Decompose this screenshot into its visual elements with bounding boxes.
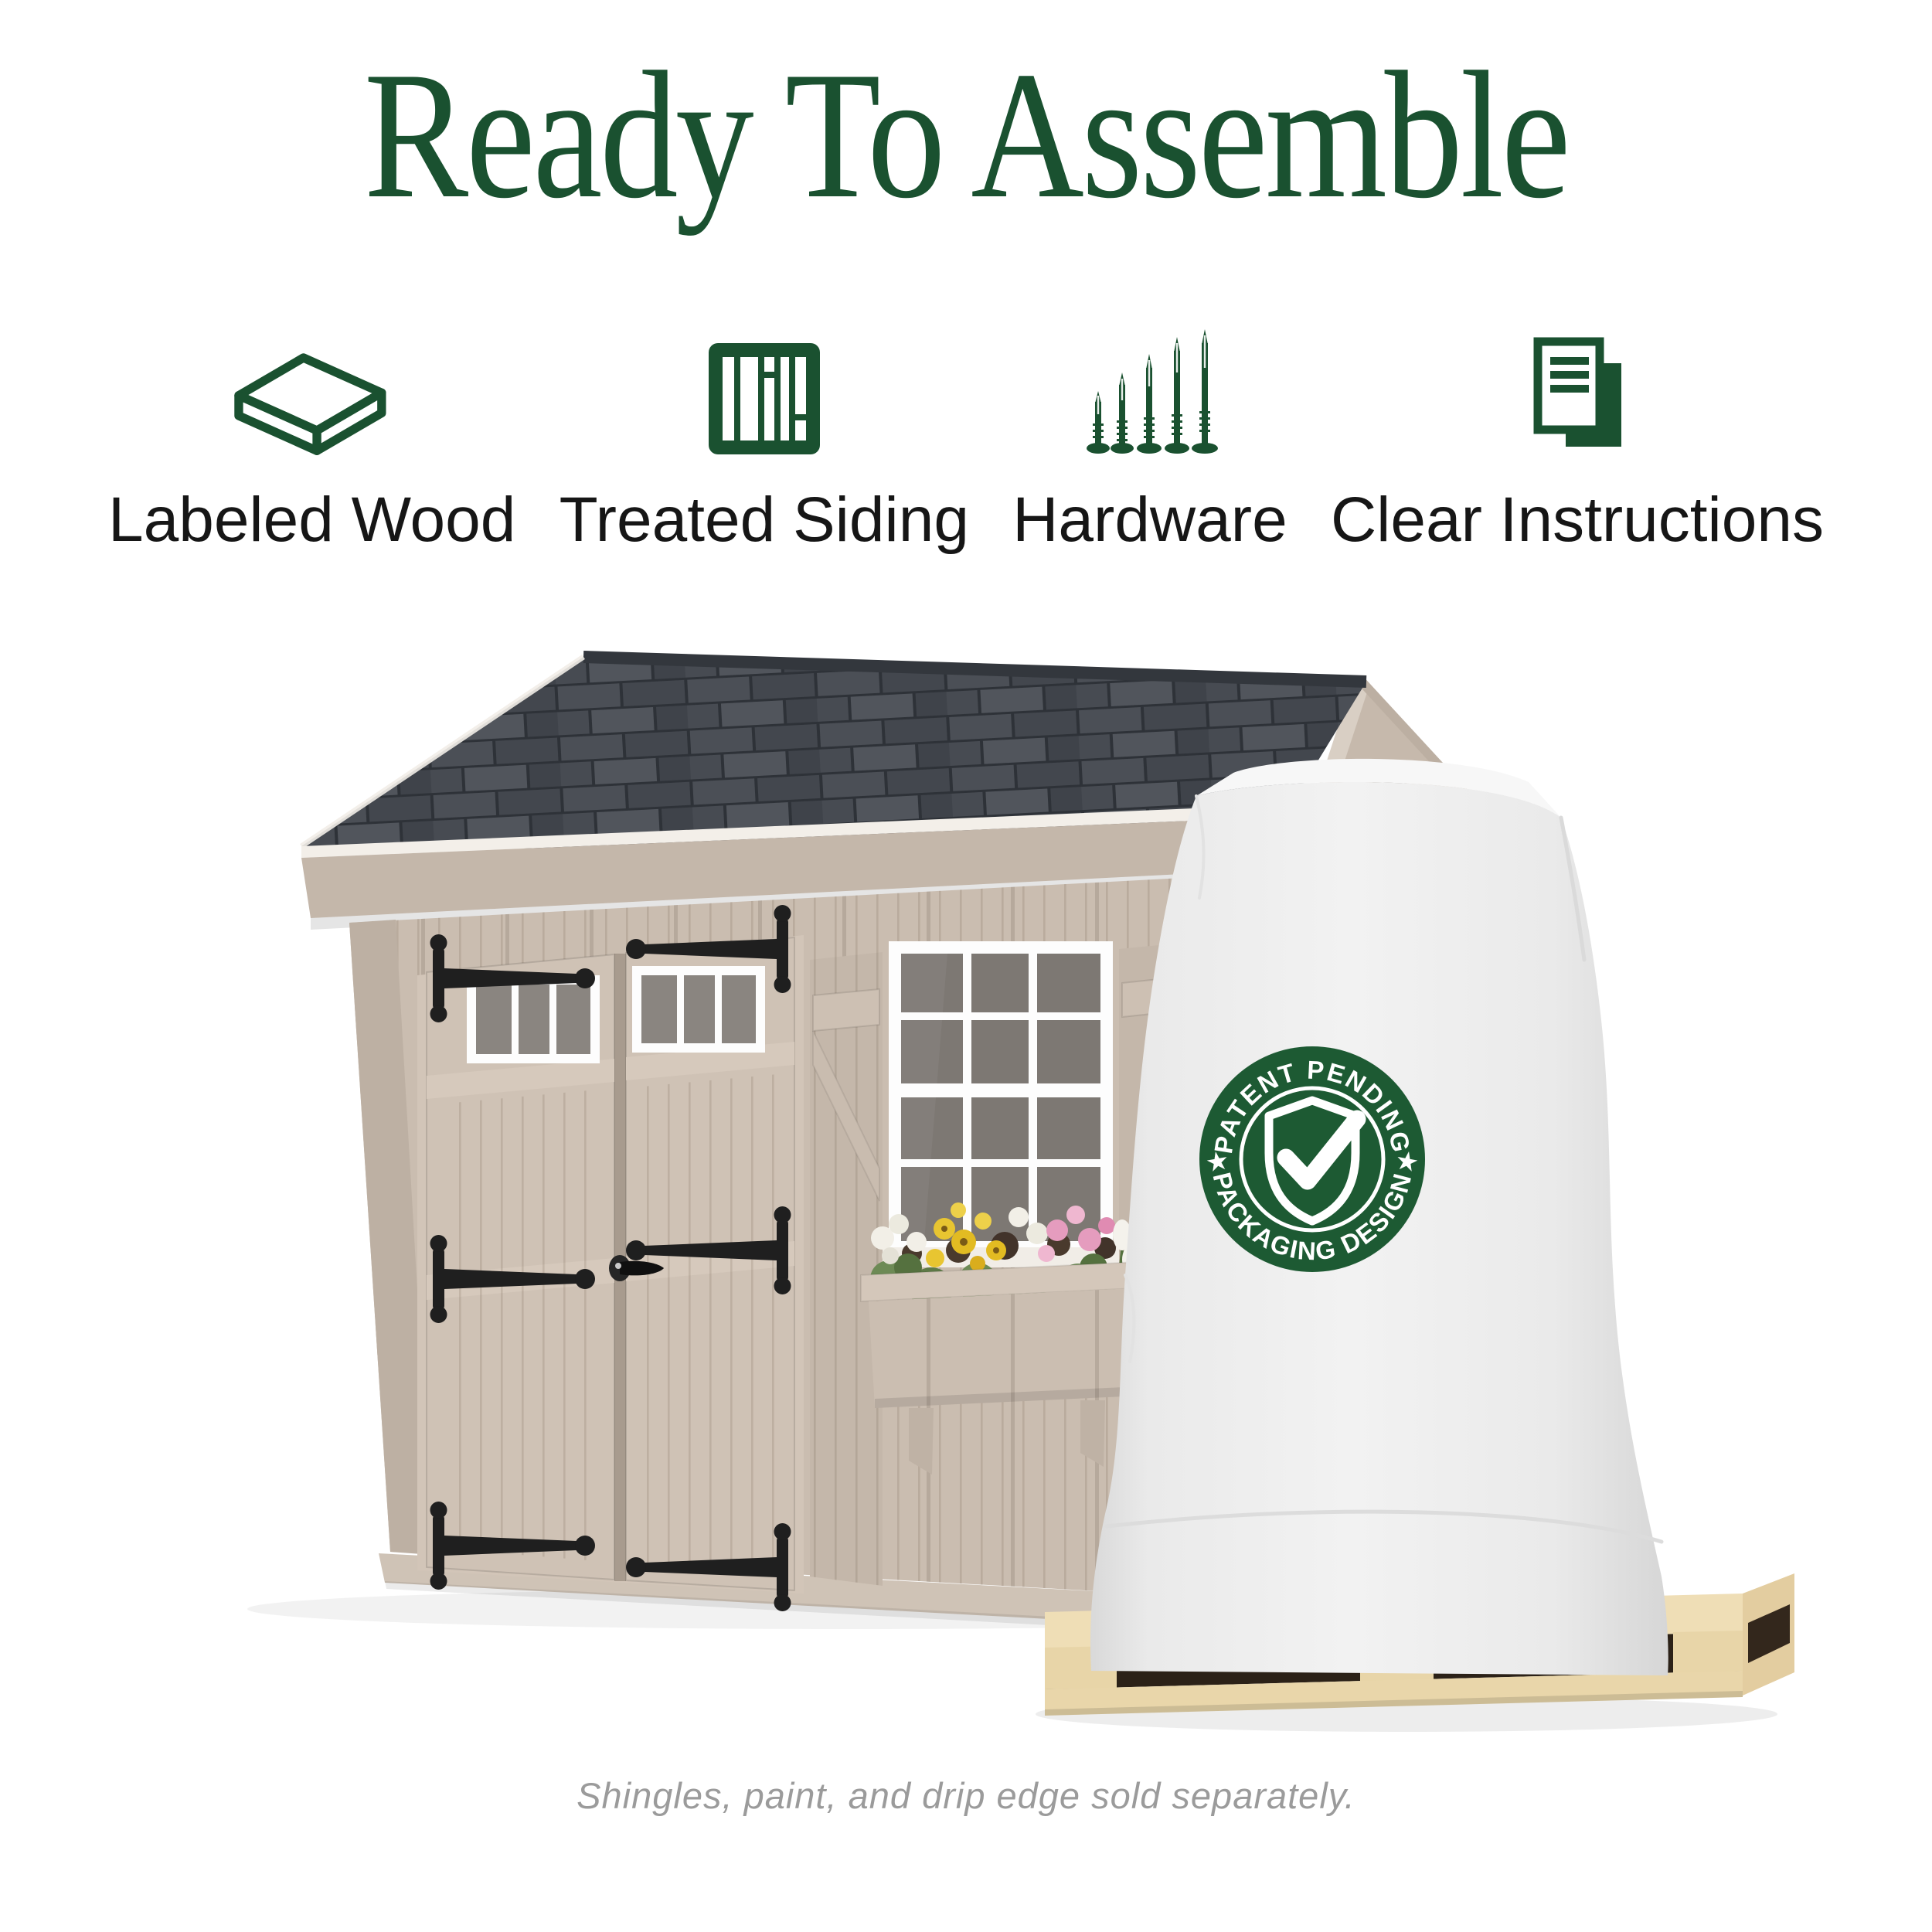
feature-label: Labeled Wood bbox=[108, 484, 515, 556]
page-title-text: Ready To Assemble bbox=[364, 40, 1568, 232]
footer-note: Shingles, paint, and drip edge sold sepa… bbox=[0, 1774, 1932, 1817]
feature-labeled-wood: Labeled Wood bbox=[108, 325, 515, 556]
door-transom-left bbox=[467, 975, 600, 1063]
door-transom-right bbox=[632, 966, 765, 1053]
wood-plank-icon bbox=[211, 325, 413, 457]
feature-row: Labeled Wood Treated Siding bbox=[108, 325, 1824, 556]
product-illustration: PATENT PENDING PACKAGING DESIGN ★ ★ bbox=[0, 641, 1932, 1754]
feature-label: Clear Instructions bbox=[1331, 484, 1824, 556]
page-title: Ready To Assemble bbox=[0, 40, 1932, 232]
shutter-left-of-window bbox=[810, 952, 883, 1586]
feature-hardware: Hardware bbox=[1012, 325, 1287, 556]
nails-icon bbox=[1076, 325, 1224, 457]
marketing-graphic: Ready To Assemble Labeled Wood bbox=[0, 0, 1932, 1932]
feature-label: Hardware bbox=[1012, 484, 1287, 556]
instructions-document-icon bbox=[1519, 325, 1635, 457]
badge-star-left: ★ bbox=[1205, 1148, 1230, 1176]
shed-double-doors bbox=[417, 905, 804, 1611]
siding-panel-icon bbox=[706, 325, 823, 457]
patent-pending-badge: PATENT PENDING PACKAGING DESIGN ★ ★ bbox=[1199, 1046, 1425, 1272]
feature-label: Treated Siding bbox=[560, 484, 969, 556]
badge-star-right: ★ bbox=[1395, 1148, 1420, 1176]
feature-treated-siding: Treated Siding bbox=[560, 325, 969, 556]
feature-clear-instructions: Clear Instructions bbox=[1331, 325, 1824, 556]
